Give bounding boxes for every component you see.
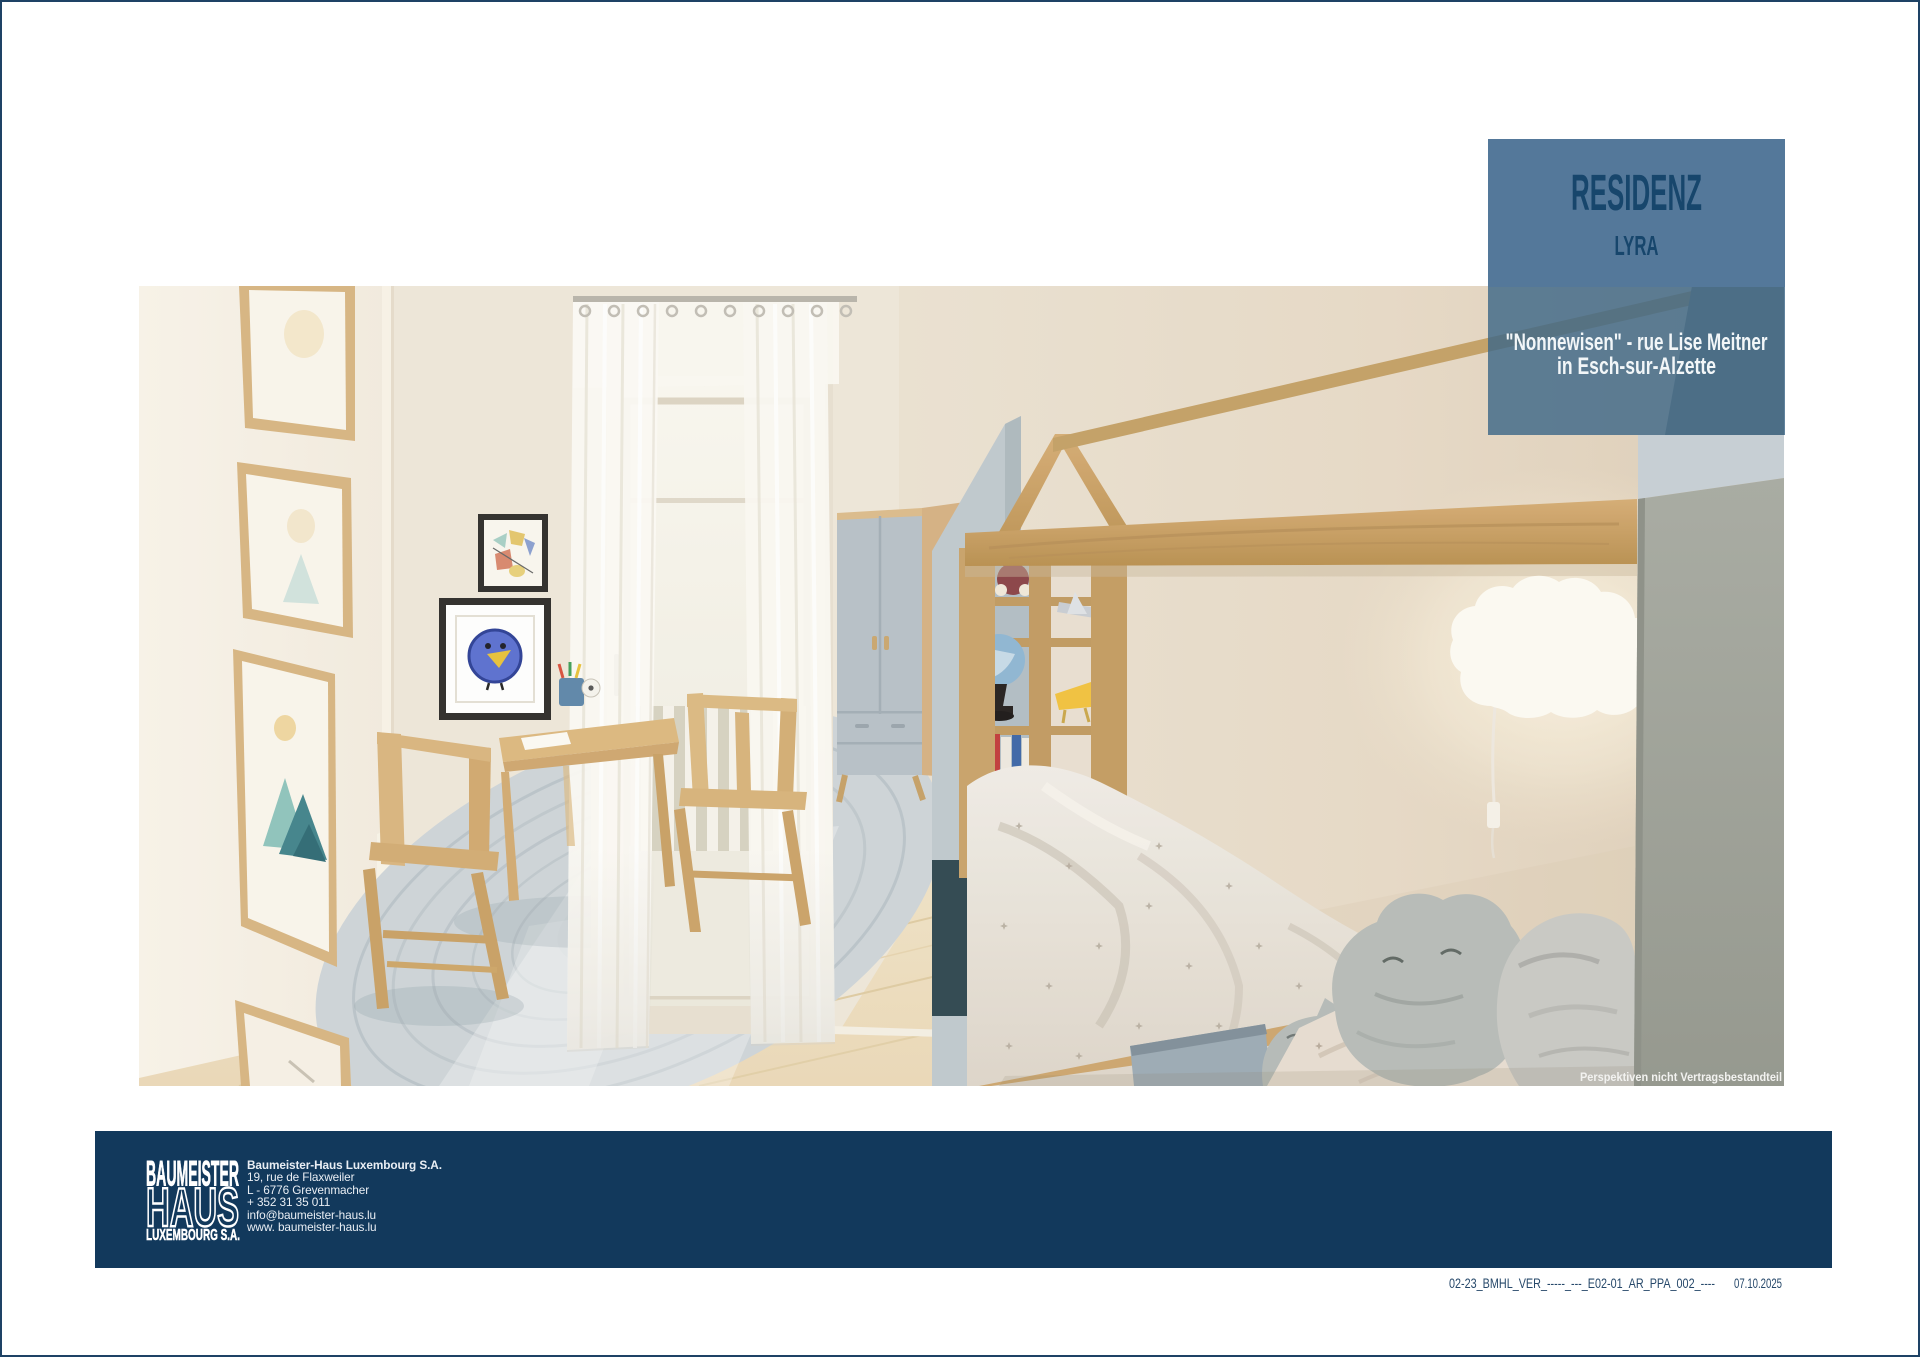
svg-text:"Nonnewisen" - rue Lise Meitne: "Nonnewisen" - rue Lise Meitner (1506, 329, 1768, 356)
svg-text:07.10.2025: 07.10.2025 (1734, 1276, 1782, 1291)
svg-text:in Esch-sur-Alzette: in Esch-sur-Alzette (1557, 353, 1716, 380)
svg-text:LUXEMBOURG S.A.: LUXEMBOURG S.A. (146, 1227, 240, 1244)
svg-text:LYRA: LYRA (1615, 230, 1659, 261)
svg-text:Perspektiven nicht Vertragsbes: Perspektiven nicht Vertragsbestandteil (1580, 1070, 1782, 1084)
svg-text:02-23_BMHL_VER_-----_---_E02-0: 02-23_BMHL_VER_-----_---_E02-01_AR_PPA_0… (1449, 1276, 1715, 1291)
svg-text:RESIDENZ: RESIDENZ (1571, 164, 1702, 221)
